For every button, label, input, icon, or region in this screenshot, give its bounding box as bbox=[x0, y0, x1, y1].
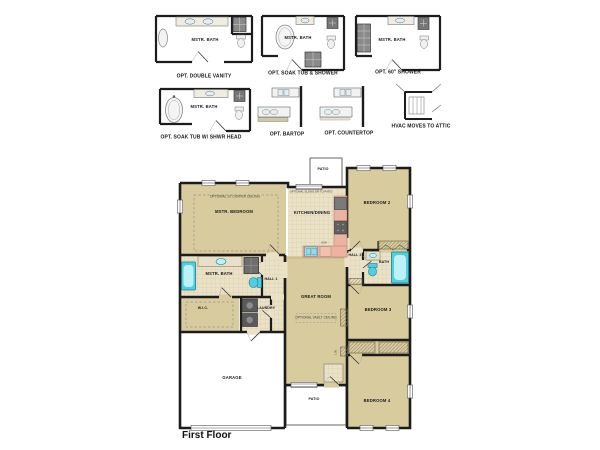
option-room-label: MSTR. BATH bbox=[190, 105, 217, 109]
hall2-linen bbox=[349, 279, 362, 285]
bedroom2-floor bbox=[348, 169, 409, 250]
main-floorplan bbox=[177, 158, 412, 431]
tub-icon bbox=[159, 29, 168, 47]
room-label-hall1: HALL 1 bbox=[264, 278, 277, 282]
sink-icon bbox=[203, 19, 213, 24]
room-label-bath2: BATH bbox=[379, 261, 389, 265]
option-diagram-soak-tub-shower bbox=[262, 16, 344, 70]
option-caption-double-vanity: OPT. DOUBLE VANITY bbox=[177, 75, 232, 80]
label-dishwasher: D/W bbox=[321, 242, 326, 245]
floorplan-drawing bbox=[0, 0, 600, 450]
sink-icon bbox=[185, 19, 195, 24]
sink-icon bbox=[301, 18, 309, 23]
fridge-icon bbox=[335, 198, 347, 210]
option-diagram-bartop bbox=[258, 86, 301, 127]
sink-icon bbox=[332, 110, 340, 115]
option-caption-countertop: OPT. COUNTERTOP bbox=[325, 132, 374, 137]
note-coffer-ceiling: OPTIONAL 12' COFFER CEILING bbox=[210, 195, 260, 198]
option-diagram-hvac bbox=[396, 84, 441, 119]
option-caption-soak-tub-shower: OPT. SOAK TUB & SHOWER bbox=[268, 72, 338, 77]
furnace-icon bbox=[409, 97, 424, 114]
option-caption-bartop: OPT. BARTOP bbox=[270, 133, 305, 138]
note-sliding-door: OPTIONAL SLDNG DR TO PATIO bbox=[290, 191, 333, 194]
sink-icon bbox=[324, 110, 332, 115]
option-caption-soak-tub-shwr-head: OPT. SOAK TUB W/ SHWR HEAD bbox=[161, 136, 242, 141]
note-vault-ceiling: OPTIONAL VAULT CEILING bbox=[295, 316, 336, 319]
option-diagram-60in-shower bbox=[356, 16, 440, 70]
patio-front-floor bbox=[286, 386, 346, 425]
wic-floor bbox=[181, 298, 239, 331]
countertop-ledge bbox=[320, 118, 350, 121]
option-caption-60in-shower: OPT. 60" SHOWER bbox=[375, 71, 421, 76]
sink-icon bbox=[270, 110, 278, 115]
room-label-bedroom3: BEDROOM 3 bbox=[365, 308, 392, 312]
floorplan-page: OPT. DOUBLE VANITY OPT. SOAK TUB & SHOWE… bbox=[0, 0, 600, 450]
sink-icon bbox=[262, 110, 270, 115]
stove-icon bbox=[335, 221, 347, 234]
option-room-label: MSTR. BATH bbox=[191, 38, 218, 42]
room-label-great-room: GREAT ROOM bbox=[301, 295, 331, 299]
option-caption-hvac: HVAC MOVES TO ATTIC bbox=[392, 125, 451, 130]
great-room-shelves bbox=[341, 309, 348, 326]
room-label-bedroom4: BEDROOM 4 bbox=[364, 399, 391, 403]
bedroom3-floor bbox=[348, 286, 409, 339]
room-label-wic: W.I.C. bbox=[198, 307, 208, 311]
plan-title: First Floor bbox=[182, 430, 231, 441]
dishwasher bbox=[320, 247, 331, 257]
option-diagram-soak-tub-shwr-head bbox=[160, 89, 250, 131]
shower-head-icon bbox=[173, 95, 175, 97]
room-label-patio-front: PATIO bbox=[309, 398, 320, 402]
room-label-patio-rear: PATIO bbox=[318, 168, 329, 172]
room-label-bedroom2: BEDROOM 2 bbox=[364, 201, 391, 205]
sink-icon bbox=[216, 259, 226, 265]
vanity-counter bbox=[176, 17, 228, 26]
room-label-laundry: LAUNDRY bbox=[257, 307, 275, 311]
closet-shelves bbox=[349, 342, 375, 353]
bartop-ledge bbox=[258, 118, 288, 122]
sink-icon bbox=[396, 18, 405, 23]
closet-shelves bbox=[379, 241, 408, 249]
option-room-label: MSTR. BATH bbox=[284, 36, 311, 40]
room-label-mstr-bedroom: MSTR. BEDROOM bbox=[215, 210, 253, 214]
linen-closet bbox=[341, 347, 348, 356]
sliding-door bbox=[291, 382, 317, 387]
room-label-linen: LIN. bbox=[335, 349, 338, 354]
option-diagram-countertop bbox=[320, 86, 363, 127]
closet-shelves bbox=[379, 342, 408, 353]
bedroom4-floor bbox=[348, 356, 409, 427]
room-label-garage: GARAGE bbox=[222, 376, 241, 380]
sink-icon bbox=[206, 91, 215, 96]
patio-rear-floor bbox=[310, 158, 342, 187]
room-label-kitchen-dining: KITCHEN/DINING bbox=[294, 211, 331, 215]
room-label-hall2: HALL 2 bbox=[348, 254, 361, 258]
sink-icon bbox=[370, 253, 377, 257]
option-room-label: MSTR. BATH bbox=[378, 38, 405, 42]
room-label-mstr-bath: MSTR. BATH bbox=[205, 272, 232, 276]
